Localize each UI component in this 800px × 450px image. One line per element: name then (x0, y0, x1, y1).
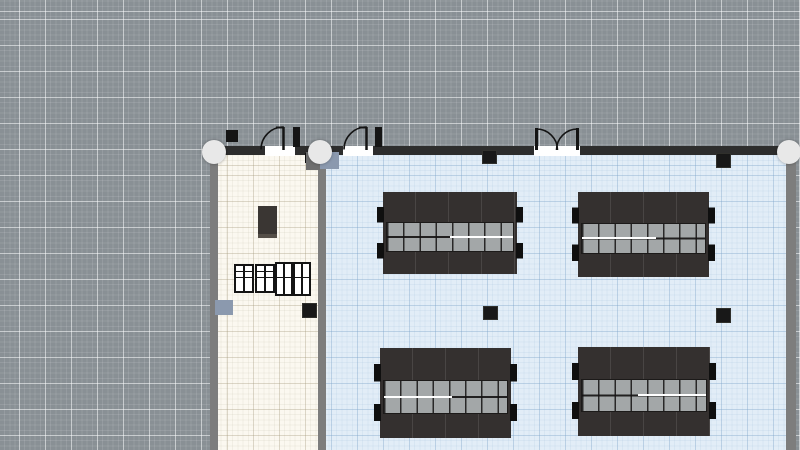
door-swing-arc (537, 129, 558, 150)
canvas-viewport[interactable] (0, 0, 800, 450)
wall-handle-middle[interactable] (308, 140, 332, 164)
door-swing-arc (344, 127, 367, 150)
wall-handle-right[interactable] (777, 140, 800, 164)
door-swing-arc (557, 129, 578, 150)
wall-handle-left[interactable] (202, 140, 226, 164)
door-swing-overlay (0, 0, 800, 450)
door-swing-arc (261, 127, 284, 150)
